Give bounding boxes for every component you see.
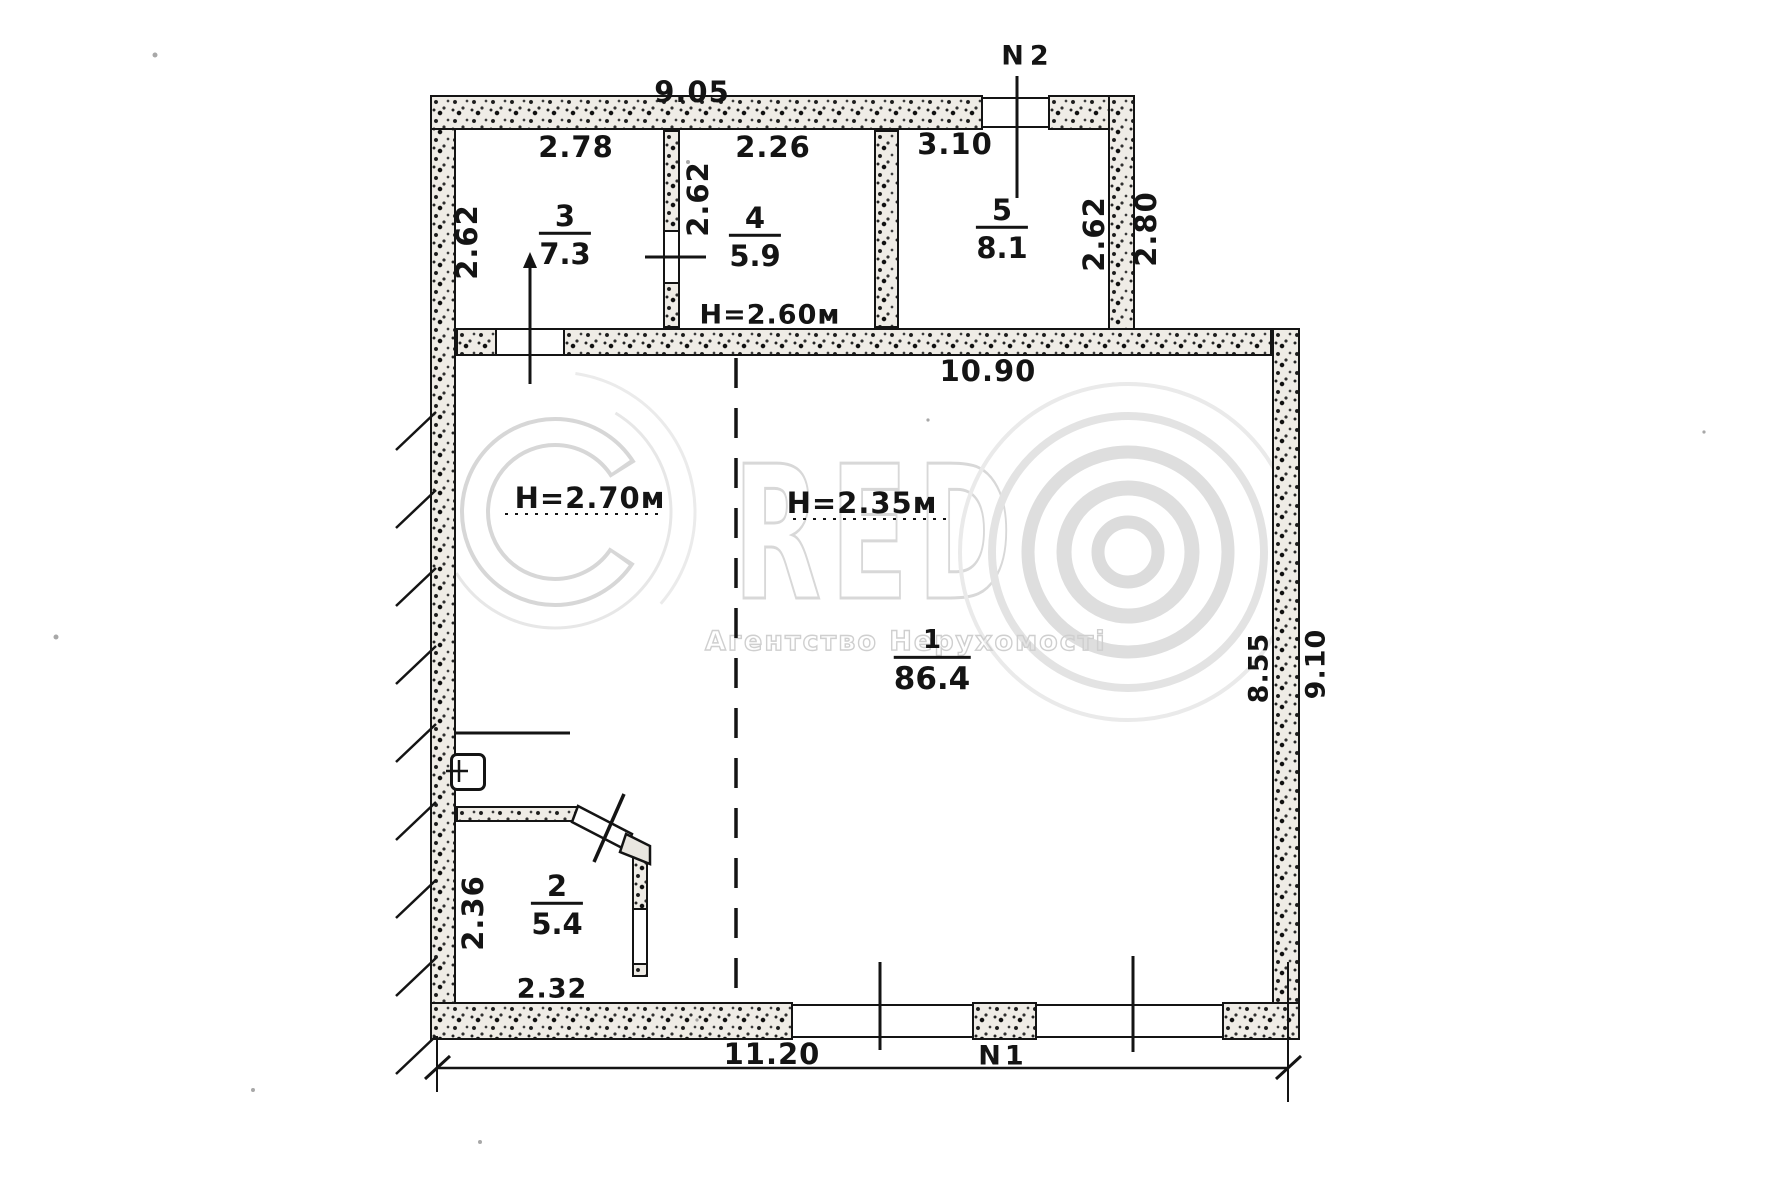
dim-room3-width: 2.78 bbox=[538, 130, 614, 164]
room-1-label: 1 86.4 bbox=[894, 627, 971, 697]
floor-plan-scan: RED Агентство Нерухомості bbox=[0, 0, 1772, 1181]
room-2-number: 2 bbox=[531, 871, 583, 905]
dim-room4-depth: 2.62 bbox=[681, 161, 715, 237]
room-3-area: 7.3 bbox=[539, 235, 591, 271]
door-opening-room2 bbox=[572, 806, 632, 850]
dim-bottom-width: 11.20 bbox=[724, 1037, 821, 1071]
room-1-number: 1 bbox=[894, 627, 971, 659]
room-5-area: 8.1 bbox=[976, 229, 1028, 265]
opening-bottom-right-n1 bbox=[1037, 1004, 1222, 1038]
watermark-red-text: RED bbox=[733, 427, 1021, 642]
door-opening-room3-room4 bbox=[663, 232, 680, 282]
door-marker-room2 bbox=[594, 794, 624, 862]
dim-upper-right-outer: 2.80 bbox=[1129, 191, 1163, 267]
entrance-n2-label: N2 bbox=[1001, 41, 1054, 72]
room-3-label: 3 7.3 bbox=[539, 201, 591, 271]
dim-top-width: 9.05 bbox=[654, 75, 730, 109]
wall-room3-room4-lower bbox=[663, 282, 680, 328]
wall-bottom-pier bbox=[972, 1002, 1037, 1040]
room-5-label: 5 8.1 bbox=[976, 195, 1028, 265]
room-5-number: 5 bbox=[976, 195, 1028, 229]
room-4-area: 5.9 bbox=[729, 237, 781, 273]
entrance-n1-label: N1 bbox=[978, 1041, 1027, 1072]
wall-room2-right-upper bbox=[632, 850, 648, 910]
wall-room4-room5 bbox=[874, 130, 899, 328]
wall-middle-main bbox=[563, 328, 1272, 356]
wall-bottom-left-segment bbox=[430, 1002, 793, 1040]
height-main-left: H=2.70м bbox=[515, 481, 666, 515]
wall-room3-room4-upper bbox=[663, 130, 680, 232]
window-opening-room2 bbox=[632, 910, 648, 963]
door-opening-n2 bbox=[983, 97, 1048, 128]
dim-right-inner-height: 8.55 bbox=[1244, 633, 1275, 704]
room-4-label: 4 5.9 bbox=[729, 203, 781, 273]
dim-middle-width: 10.90 bbox=[940, 354, 1037, 388]
room-1-area: 86.4 bbox=[894, 659, 971, 697]
dimension-tick-left bbox=[425, 1056, 450, 1079]
door-opening-room3-main bbox=[497, 328, 563, 356]
height-upper-rooms: H=2.60м bbox=[700, 300, 841, 331]
wall-middle-pier bbox=[456, 328, 497, 356]
room-2-label: 2 5.4 bbox=[531, 871, 583, 941]
dim-room2-width: 2.32 bbox=[517, 974, 588, 1005]
dim-room5-depth: 2.62 bbox=[1077, 196, 1111, 272]
dim-room4-width: 2.26 bbox=[735, 130, 811, 164]
linework-group bbox=[396, 76, 1301, 1102]
fixture-symbol bbox=[450, 753, 486, 791]
dim-right-outer-height: 9.10 bbox=[1301, 629, 1332, 700]
room-4-number: 4 bbox=[729, 203, 781, 237]
dimension-tick-right bbox=[1276, 1056, 1301, 1079]
room-2-area: 5.4 bbox=[531, 905, 583, 941]
room-3-number: 3 bbox=[539, 201, 591, 235]
wall-right-outer bbox=[1272, 328, 1300, 1040]
watermark-letters-red: RED bbox=[733, 427, 1021, 642]
dim-room2-depth: 2.36 bbox=[456, 875, 490, 951]
wall-room2-top bbox=[456, 806, 578, 822]
height-main-right: H=2.35м bbox=[787, 486, 938, 520]
door-marker-arrow bbox=[523, 252, 537, 268]
wall-room2-right-lower bbox=[632, 963, 648, 977]
dim-room3-depth: 2.62 bbox=[450, 204, 484, 280]
wall-bottom-right-segment bbox=[1222, 1002, 1300, 1040]
opening-bottom-left bbox=[793, 1004, 972, 1038]
dim-room5-width: 3.10 bbox=[917, 127, 993, 161]
